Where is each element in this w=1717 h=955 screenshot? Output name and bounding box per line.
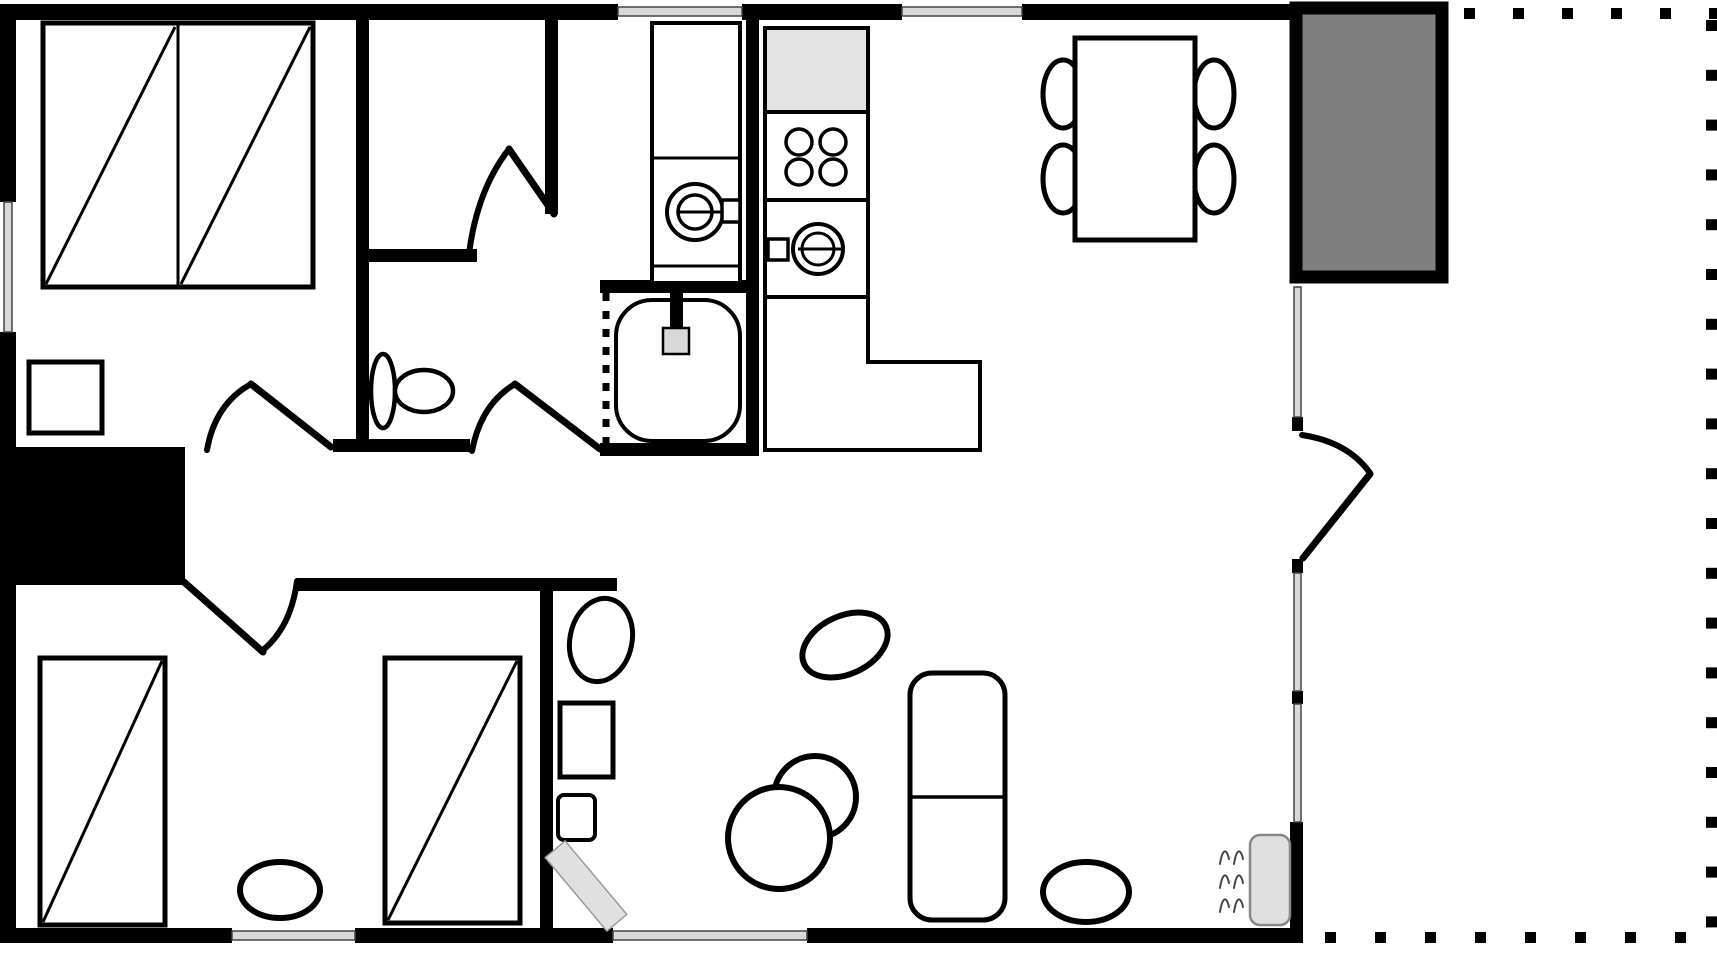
armchair-big <box>728 787 830 889</box>
stove <box>765 112 868 200</box>
terrace-dots-right-18 <box>1706 867 1717 878</box>
terrace-dots-top-1 <box>1464 8 1475 19</box>
window-left-bedroom1 <box>4 202 12 332</box>
terrace-dots-bottom-3 <box>1425 932 1436 943</box>
wall-left-upper <box>0 4 16 202</box>
wall-bathroom-bottom <box>600 443 759 456</box>
dining-chair-4 <box>1194 145 1234 213</box>
floor-plan-page <box>0 0 1717 955</box>
terrace-dots-right-16 <box>1706 767 1717 778</box>
washer-handle <box>722 200 740 222</box>
terrace-dots-right-1 <box>1706 20 1717 31</box>
floor-plan <box>0 0 1717 955</box>
entry-door-post-top <box>1292 417 1303 431</box>
terrace-dots-bottom-7 <box>1625 932 1636 943</box>
wall-closet-right <box>545 16 558 214</box>
terrace-dots-bottom-4 <box>1475 932 1486 943</box>
entry-door-post-bottom <box>1292 559 1303 573</box>
wall-top-mid <box>742 4 902 20</box>
porch <box>1296 8 1442 277</box>
terrace-dots-right-3 <box>1706 120 1717 131</box>
terrace-dots-right-8 <box>1706 369 1717 380</box>
fridge <box>765 28 868 112</box>
right-window-post <box>1292 691 1303 704</box>
dining-table <box>1075 38 1195 240</box>
terrace-dots-top-2 <box>1513 8 1524 19</box>
window-top-laundry <box>618 7 742 16</box>
terrace-dots-right-15 <box>1706 717 1717 728</box>
terrace-dots-bottom-6 <box>1575 932 1586 943</box>
washer-body <box>652 23 740 283</box>
terrace-dots-bottom-2 <box>1375 932 1386 943</box>
wall-top-right <box>1022 4 1294 20</box>
wall-bottom-1 <box>0 928 232 943</box>
toilet-tank <box>371 354 395 428</box>
terrace-dots-right-4 <box>1706 169 1717 180</box>
wall-kitchen <box>746 16 759 456</box>
wall-closet-bottom <box>356 249 477 262</box>
wall-toilet-bottom <box>333 439 470 452</box>
terrace-dots-right-5 <box>1706 219 1717 230</box>
wall-hall-bottom <box>297 578 617 591</box>
window-top-kitchen <box>902 7 1022 16</box>
bedroom2-rug <box>240 862 320 918</box>
oven-handle <box>768 239 788 260</box>
dining-chair-3 <box>1194 60 1234 128</box>
pouf <box>1043 862 1129 922</box>
window-bottom-living <box>613 931 807 940</box>
wall-bedroom1-right <box>356 16 369 442</box>
wall-left-lower <box>0 332 16 943</box>
shower-head <box>663 328 689 354</box>
shower-pipe <box>670 284 683 330</box>
terrace-dots-right-6 <box>1706 269 1717 280</box>
nightstand <box>29 362 102 433</box>
window-right-lower <box>1294 704 1301 822</box>
terrace-dots-right-2 <box>1706 70 1717 81</box>
toilet-bowl <box>395 370 453 412</box>
terrace-dots-right-17 <box>1706 817 1717 828</box>
terrace-dots-right-12 <box>1706 568 1717 579</box>
radiator <box>1250 835 1290 925</box>
window-bottom-bedroom2 <box>232 931 355 940</box>
window-right-upper <box>1294 287 1301 417</box>
terrace-dots-right-19 <box>1706 916 1717 927</box>
terrace-dots-right-11 <box>1706 518 1717 529</box>
terrace-dots-right-7 <box>1706 319 1717 330</box>
terrace-dots-bottom-1 <box>1325 932 1336 943</box>
terrace-dots-bottom-5 <box>1525 932 1536 943</box>
wall-living-left <box>540 578 553 928</box>
side-table <box>560 703 613 777</box>
terrace-dots-top-3 <box>1562 8 1573 19</box>
terrace-dots-right-9 <box>1706 418 1717 429</box>
terrace-dots-top-5 <box>1660 8 1671 19</box>
wall-bottom-2 <box>355 928 613 943</box>
small-stool <box>558 795 595 840</box>
terrace-dots-right-13 <box>1706 618 1717 629</box>
terrace-dots-top-6 <box>1709 8 1717 19</box>
wall-right-lower <box>1290 822 1303 943</box>
chimney-block <box>6 447 185 585</box>
terrace-dots-top-4 <box>1611 8 1622 19</box>
terrace-dots-right-14 <box>1706 667 1717 678</box>
window-right-middle <box>1294 573 1301 691</box>
terrace-dots-bottom-8 <box>1675 932 1686 943</box>
terrace-dots-right-10 <box>1706 468 1717 479</box>
wall-top-left <box>0 4 618 20</box>
wall-bottom-3 <box>807 928 1303 943</box>
